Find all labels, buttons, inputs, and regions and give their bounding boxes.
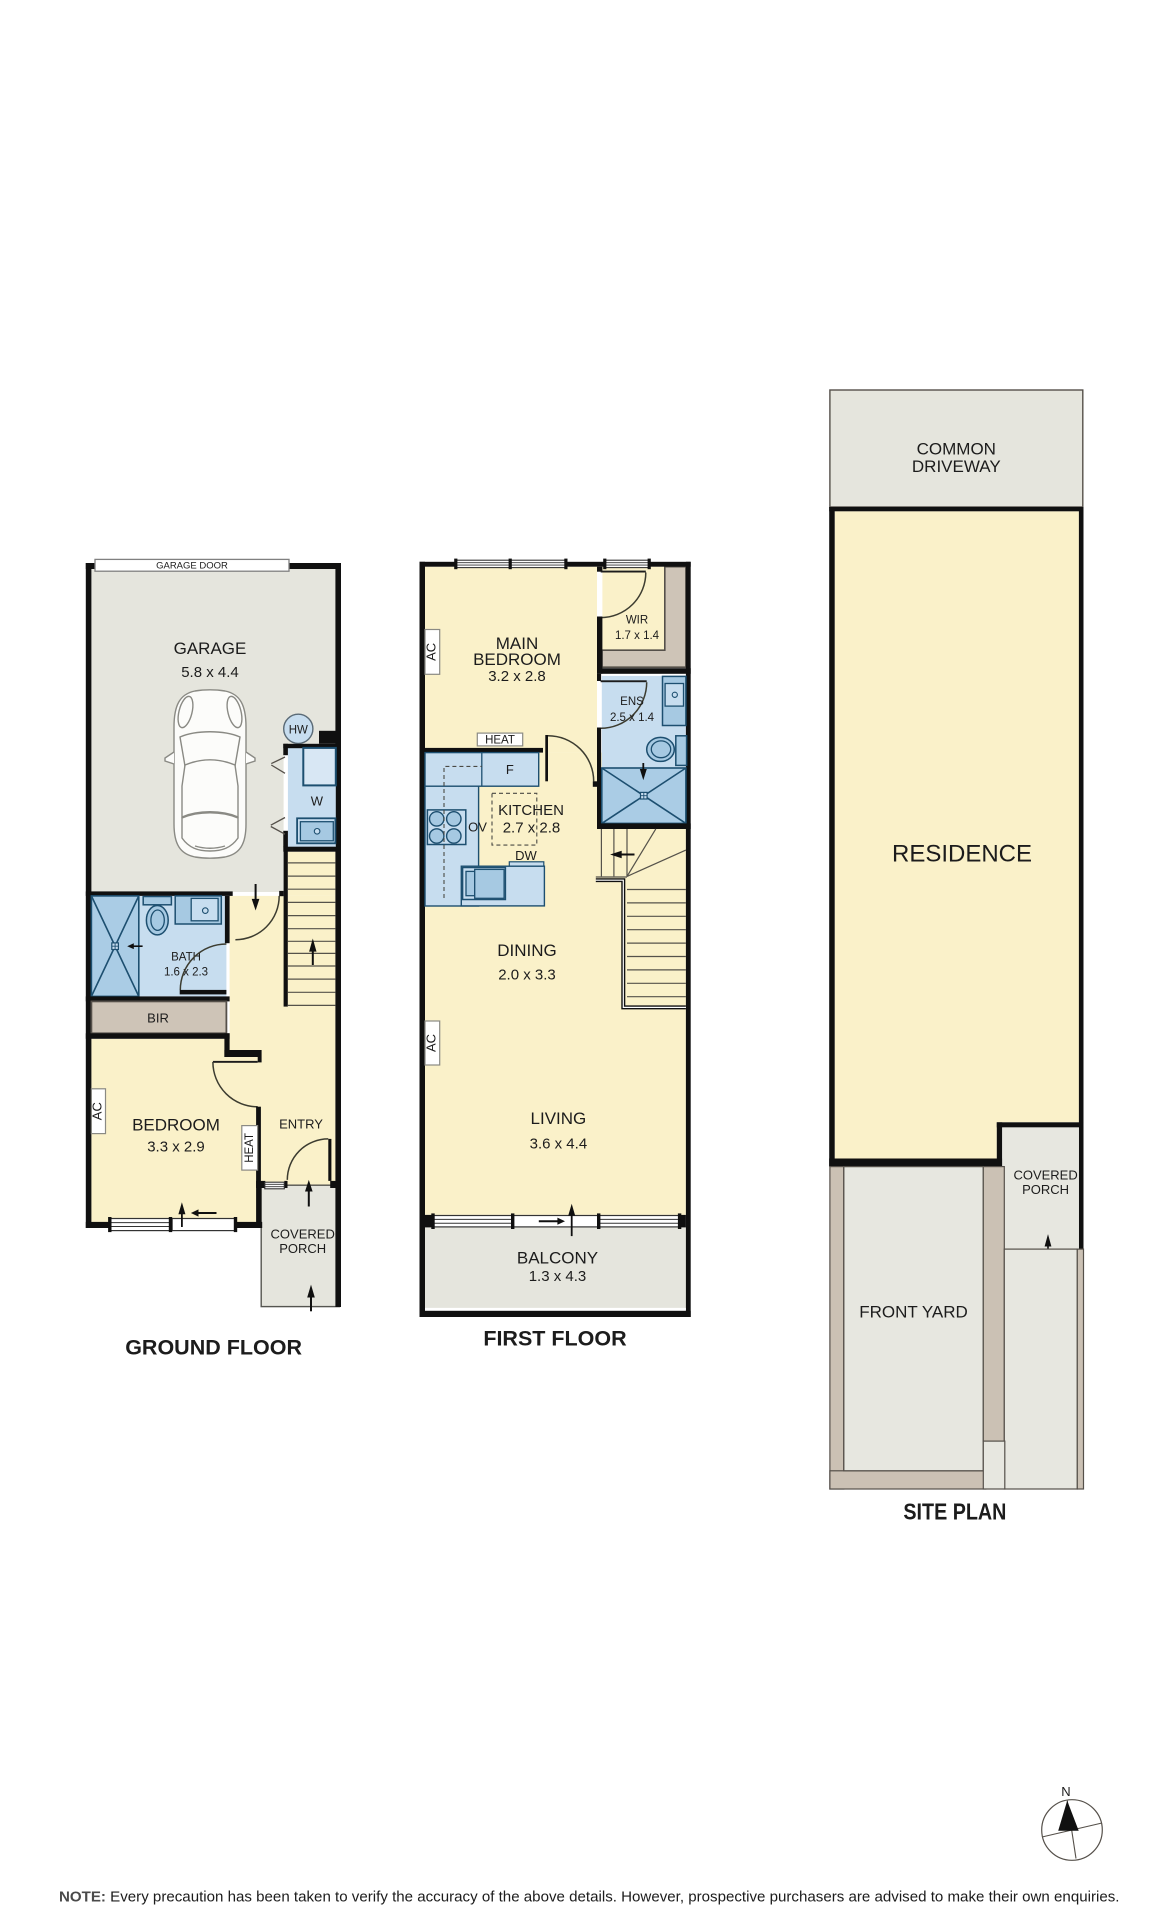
svg-text:BATH: BATH — [171, 952, 201, 964]
svg-text:AC: AC — [423, 1034, 438, 1052]
svg-text:HEAT: HEAT — [485, 734, 515, 746]
svg-text:3.6 x 4.4: 3.6 x 4.4 — [530, 1136, 588, 1153]
svg-text:AC: AC — [423, 643, 438, 661]
svg-text:HW: HW — [289, 724, 308, 736]
svg-text:5.8 x 4.4: 5.8 x 4.4 — [181, 664, 239, 681]
svg-text:COVERED: COVERED — [271, 1226, 335, 1241]
svg-text:NOTE: Every precaution has bee: NOTE: Every precaution has been taken to… — [59, 1889, 1119, 1906]
svg-text:PORCH: PORCH — [279, 1241, 326, 1256]
svg-text:AC: AC — [89, 1102, 104, 1120]
svg-text:W: W — [311, 793, 324, 808]
svg-text:2.7 x 2.8: 2.7 x 2.8 — [503, 820, 561, 837]
svg-text:ENTRY: ENTRY — [279, 1117, 323, 1132]
svg-text:BEDROOM: BEDROOM — [132, 1116, 220, 1135]
svg-text:HEAT: HEAT — [244, 1133, 256, 1163]
svg-text:FIRST FLOOR: FIRST FLOOR — [483, 1327, 627, 1351]
svg-text:GARAGE: GARAGE — [174, 639, 247, 658]
svg-text:2.5 x 1.4: 2.5 x 1.4 — [610, 712, 655, 724]
svg-text:GROUND FLOOR: GROUND FLOOR — [125, 1336, 302, 1360]
svg-text:F: F — [506, 762, 514, 777]
svg-text:LIVING: LIVING — [531, 1109, 587, 1128]
svg-text:3.2 x 2.8: 3.2 x 2.8 — [488, 668, 546, 685]
svg-text:GARAGE DOOR: GARAGE DOOR — [156, 561, 228, 572]
svg-text:BALCONY: BALCONY — [517, 1248, 598, 1267]
svg-text:FRONT YARD: FRONT YARD — [859, 1303, 968, 1322]
svg-text:2.0 x 3.3: 2.0 x 3.3 — [498, 967, 556, 984]
svg-text:DINING: DINING — [497, 941, 557, 960]
svg-text:N: N — [1061, 1784, 1070, 1799]
svg-text:ENS: ENS — [620, 696, 644, 708]
svg-text:KITCHEN: KITCHEN — [498, 802, 564, 819]
svg-text:OV: OV — [468, 820, 487, 835]
svg-text:PORCH: PORCH — [1022, 1182, 1069, 1197]
svg-text:WIR: WIR — [626, 615, 648, 627]
svg-text:COVERED: COVERED — [1013, 1167, 1077, 1182]
svg-text:1.7 x 1.4: 1.7 x 1.4 — [615, 630, 660, 642]
svg-text:DRIVEWAY: DRIVEWAY — [912, 457, 1001, 476]
svg-text:DW: DW — [515, 848, 537, 863]
svg-text:SITE PLAN: SITE PLAN — [903, 1499, 1006, 1525]
svg-text:BEDROOM: BEDROOM — [473, 650, 561, 669]
svg-text:COMMON: COMMON — [917, 439, 996, 458]
svg-text:BIR: BIR — [147, 1011, 169, 1026]
svg-text:1.3 x 4.3: 1.3 x 4.3 — [529, 1268, 587, 1285]
svg-text:RESIDENCE: RESIDENCE — [892, 841, 1032, 868]
svg-text:3.3 x 2.9: 3.3 x 2.9 — [147, 1138, 205, 1155]
